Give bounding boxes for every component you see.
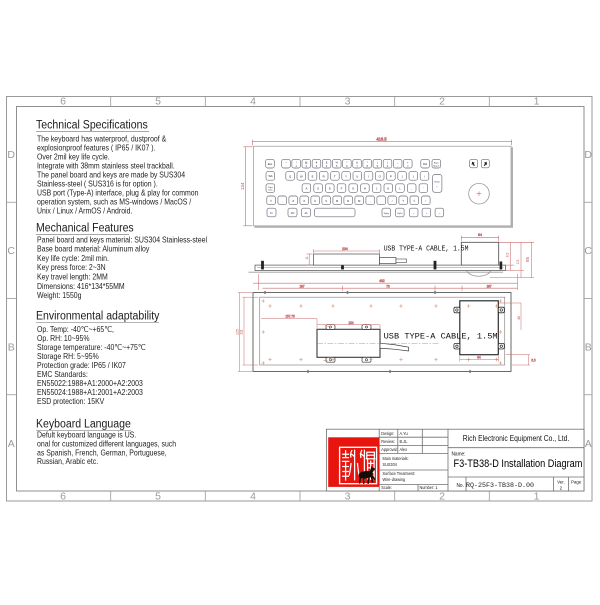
svg-text:B: B — [8, 341, 15, 353]
svg-text:A.Yu: A.Yu — [400, 431, 409, 436]
svg-text:Technical Specifications: Technical Specifications — [36, 119, 148, 132]
svg-text:&: & — [356, 160, 358, 164]
svg-text:Caps: Caps — [268, 187, 273, 189]
svg-text:V: V — [325, 199, 327, 203]
svg-text:48: 48 — [517, 316, 521, 320]
svg-text:Tab: Tab — [268, 174, 273, 178]
svg-text:6: 6 — [60, 95, 66, 107]
svg-text:A: A — [585, 438, 592, 450]
svg-text:Review:: Review: — [381, 439, 395, 444]
svg-text:Weight: 1550g: Weight: 1550g — [37, 290, 81, 300]
svg-text:X: X — [303, 199, 305, 203]
svg-text:1: 1 — [534, 490, 540, 502]
svg-text:5: 5 — [155, 95, 161, 107]
svg-text:-: - — [397, 165, 398, 168]
svg-text:402: 402 — [379, 279, 384, 283]
svg-text:N: N — [347, 199, 349, 203]
svg-text:No.: No. — [457, 482, 464, 488]
svg-text:Main materials:: Main materials: — [383, 456, 409, 461]
svg-text:Scale:: Scale: — [381, 485, 392, 490]
svg-text:Esc: Esc — [268, 162, 273, 166]
svg-text:Wire-drawing: Wire-drawing — [383, 477, 406, 482]
svg-text:55: 55 — [525, 257, 531, 263]
svg-text:Ver.: Ver. — [557, 479, 564, 484]
svg-text:125: 125 — [235, 329, 239, 335]
svg-text:C: C — [314, 199, 316, 203]
svg-text:D: D — [7, 149, 15, 161]
svg-text:167: 167 — [486, 284, 491, 288]
svg-text:S: S — [317, 187, 319, 191]
svg-text:(: ( — [377, 160, 378, 164]
svg-text:Ctrl: Ctrl — [291, 212, 295, 215]
svg-text:W: W — [300, 174, 303, 178]
svg-text:8.5: 8.5 — [505, 253, 509, 258]
svg-text:73: 73 — [386, 284, 390, 288]
svg-text:4: 4 — [250, 490, 256, 502]
svg-text:Del: Del — [423, 162, 427, 166]
svg-text:1: 1 — [534, 95, 540, 107]
svg-text:Rich Electronic Equipment Co.,: Rich Electronic Equipment Co., Ltd. — [463, 433, 570, 443]
svg-text:←: ← — [436, 184, 439, 188]
svg-text:234: 234 — [342, 247, 348, 251]
svg-text:P: P — [390, 174, 392, 178]
svg-text:U: U — [356, 174, 358, 178]
svg-text:Unix / Linux / ArmOS / Android: Unix / Linux / ArmOS / Android. — [37, 206, 132, 216]
svg-text:D: D — [329, 187, 331, 191]
svg-text:H: H — [364, 187, 366, 191]
svg-text:←: ← — [412, 211, 415, 215]
svg-text:`: ` — [286, 164, 287, 168]
svg-text:134: 134 — [240, 182, 245, 190]
svg-text:→: → — [438, 211, 441, 215]
svg-text:111: 111 — [240, 329, 244, 334]
svg-text:B.JL: B.JL — [400, 439, 408, 444]
svg-text:T: T — [334, 174, 336, 178]
svg-text:USB TYPE-A CABLE, 1.5M: USB TYPE-A CABLE, 1.5M — [384, 333, 498, 342]
svg-text:A: A — [305, 187, 307, 191]
svg-text:Surface Treatment:: Surface Treatment: — [383, 471, 416, 476]
svg-text:PgUp: PgUp — [384, 213, 390, 215]
svg-text:PgDn: PgDn — [397, 213, 403, 215]
svg-text:ESD protection: 15KV: ESD protection: 15KV — [37, 396, 105, 406]
svg-text:F: F — [341, 187, 343, 191]
svg-text:2: 2 — [439, 95, 445, 107]
svg-text:RQ-25F3-TB38-D.00: RQ-25F3-TB38-D.00 — [466, 482, 534, 490]
svg-text:⇧: ⇧ — [413, 199, 416, 203]
svg-text:Keyboard Language: Keyboard Language — [36, 418, 131, 431]
svg-text:@: @ — [305, 160, 308, 164]
svg-text:⇧: ⇧ — [270, 199, 273, 203]
svg-text:234: 234 — [348, 321, 353, 325]
svg-text:4: 4 — [250, 95, 256, 107]
svg-text:3: 3 — [345, 490, 351, 502]
svg-text:C: C — [584, 245, 592, 257]
svg-text:6: 6 — [60, 490, 66, 502]
svg-text:Page: Page — [571, 479, 581, 484]
svg-text:Approval:: Approval: — [381, 447, 397, 452]
svg-text:2.5: 2.5 — [516, 260, 520, 265]
svg-text:G: G — [352, 187, 354, 191]
svg-text:SUS304: SUS304 — [383, 462, 398, 467]
svg-text:*: * — [367, 160, 368, 164]
svg-text:Number: 1: Number: 1 — [419, 485, 438, 490]
svg-text:167: 167 — [299, 284, 304, 288]
svg-text:416.5: 416.5 — [376, 136, 387, 141]
svg-text:84: 84 — [477, 355, 481, 359]
svg-text:A: A — [8, 438, 15, 450]
svg-text:Space: Space — [433, 165, 440, 167]
svg-text:Z: Z — [292, 199, 294, 203]
svg-text:5: 5 — [155, 490, 161, 502]
svg-text:Name:: Name: — [452, 451, 466, 457]
svg-text:Alt: Alt — [305, 212, 308, 215]
svg-text:Mechanical Features: Mechanical Features — [36, 222, 134, 235]
svg-text:C: C — [7, 245, 15, 257]
svg-text:Russian, Arabic etc.: Russian, Arabic etc. — [37, 457, 98, 467]
svg-text:B: B — [336, 199, 338, 203]
svg-text:K: K — [387, 187, 389, 191]
svg-text:): ) — [387, 160, 388, 164]
svg-text:B: B — [585, 341, 592, 353]
svg-text:D: D — [584, 149, 592, 161]
svg-text:11: 11 — [305, 256, 309, 260]
svg-text:Y: Y — [345, 174, 347, 178]
svg-text:Environmental adaptability: Environmental adaptability — [36, 310, 160, 323]
svg-text:84: 84 — [478, 233, 482, 237]
svg-text:3: 3 — [345, 95, 351, 107]
svg-text:F3-TB38-D Installation Diagram: F3-TB38-D Installation Diagram — [454, 459, 583, 471]
svg-text:Alex: Alex — [400, 447, 408, 452]
svg-text:5.5: 5.5 — [531, 358, 535, 362]
svg-text:2: 2 — [439, 490, 445, 502]
svg-text:157.75: 157.75 — [285, 315, 295, 319]
svg-text:Design:: Design: — [381, 431, 394, 436]
svg-text:R: R — [323, 174, 325, 178]
svg-text:E: E — [312, 174, 314, 178]
svg-text:USB TYPE-A CABLE, 1.5M: USB TYPE-A CABLE, 1.5M — [384, 246, 469, 254]
